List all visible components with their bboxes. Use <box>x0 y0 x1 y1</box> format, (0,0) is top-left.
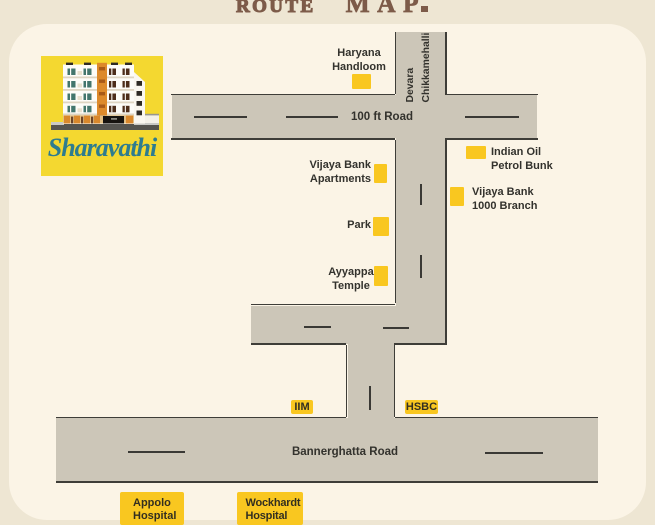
svg-text:Chikkamehalli: Chikkamehalli <box>421 33 432 103</box>
